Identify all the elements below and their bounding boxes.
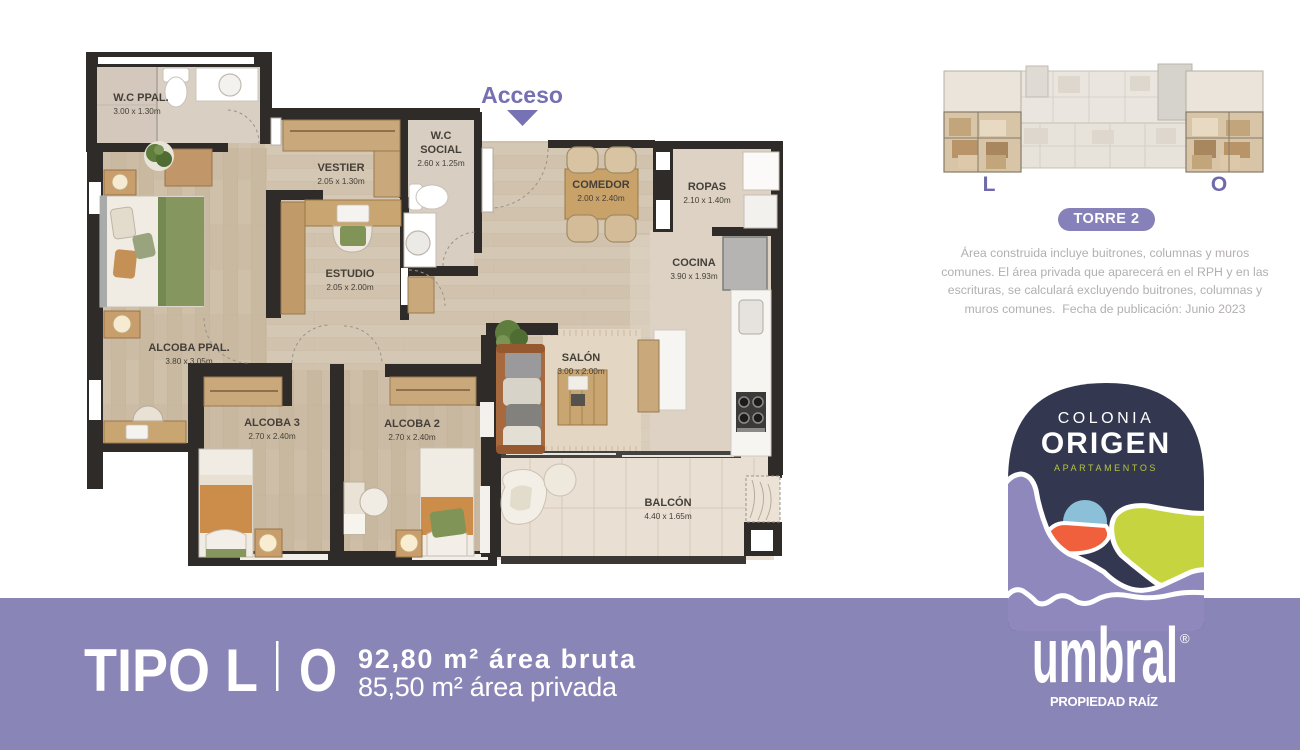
- svg-text:2.05 x 2.00m: 2.05 x 2.00m: [326, 283, 374, 292]
- svg-text:BALCÓN: BALCÓN: [644, 496, 691, 509]
- svg-text:SOCIAL: SOCIAL: [420, 144, 462, 156]
- svg-text:SALÓN: SALÓN: [562, 351, 601, 364]
- svg-text:2.70 x 2.40m: 2.70 x 2.40m: [388, 433, 436, 442]
- svg-text:3.00 x 2.00m: 3.00 x 2.00m: [557, 367, 605, 376]
- svg-text:2.10 x 1.40m: 2.10 x 1.40m: [683, 196, 731, 205]
- svg-text:®: ®: [1180, 631, 1190, 646]
- svg-text:VESTIER: VESTIER: [317, 162, 364, 174]
- svg-text:ALCOBA 3: ALCOBA 3: [244, 417, 300, 429]
- svg-text:W.C PPAL.: W.C PPAL.: [113, 92, 168, 104]
- svg-text:3.00 x 1.30m: 3.00 x 1.30m: [113, 107, 161, 116]
- svg-text:O: O: [1211, 173, 1227, 196]
- svg-text:COCINA: COCINA: [672, 257, 715, 269]
- svg-text:L: L: [983, 173, 996, 196]
- svg-text:COMEDOR: COMEDOR: [572, 179, 630, 191]
- svg-text:85,50 m² área privada: 85,50 m² área privada: [358, 672, 618, 702]
- svg-text:2.00 x 2.40m: 2.00 x 2.40m: [577, 194, 625, 203]
- svg-text:W.C: W.C: [431, 130, 452, 142]
- svg-text:umbral: umbral: [1032, 625, 1178, 699]
- svg-text:ESTUDIO: ESTUDIO: [326, 268, 375, 280]
- svg-text:ORIGEN: ORIGEN: [1041, 427, 1171, 460]
- svg-text:3.90 x 1.93m: 3.90 x 1.93m: [670, 272, 718, 281]
- svg-text:2.70 x 2.40m: 2.70 x 2.40m: [248, 432, 296, 441]
- svg-text:O: O: [299, 637, 337, 704]
- svg-text:3.80 x 3.05m: 3.80 x 3.05m: [165, 357, 213, 366]
- svg-text:4.40 x 1.65m: 4.40 x 1.65m: [644, 512, 692, 521]
- svg-text:ALCOBA 2: ALCOBA 2: [384, 418, 440, 430]
- svg-text:92,80 m² área bruta: 92,80 m² área bruta: [358, 644, 636, 674]
- svg-text:2.60 x 1.25m: 2.60 x 1.25m: [417, 159, 465, 168]
- svg-text:ROPAS: ROPAS: [688, 181, 726, 193]
- svg-text:PROPIEDAD RAÍZ: PROPIEDAD RAÍZ: [1050, 694, 1160, 709]
- svg-text:Acceso: Acceso: [481, 82, 563, 108]
- svg-text:2.05 x 1.30m: 2.05 x 1.30m: [317, 177, 365, 186]
- svg-text:COLONIA: COLONIA: [1058, 410, 1155, 427]
- svg-text:APARTAMENTOS: APARTAMENTOS: [1054, 463, 1158, 473]
- svg-text:ALCOBA PPAL.: ALCOBA PPAL.: [148, 342, 229, 354]
- svg-text:TIPO L: TIPO L: [84, 637, 258, 704]
